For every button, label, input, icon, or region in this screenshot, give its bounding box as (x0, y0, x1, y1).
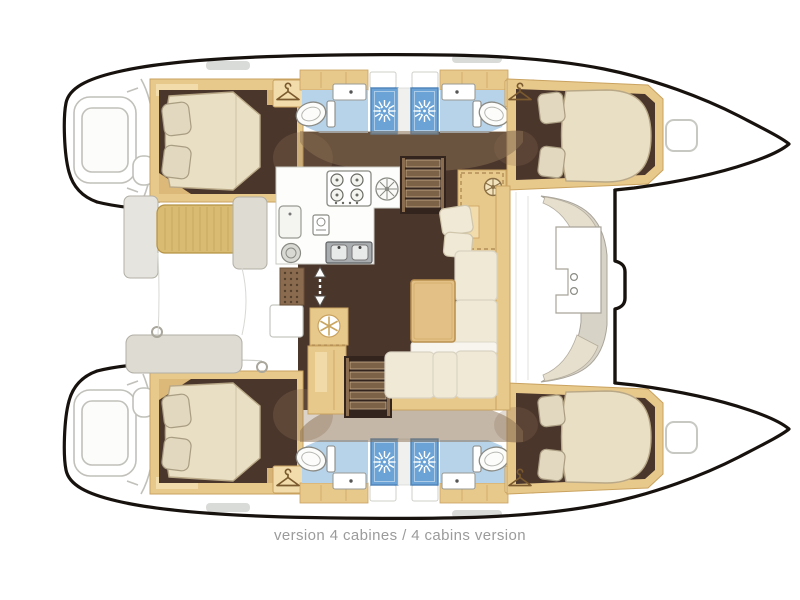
vent-fan-icon (376, 178, 398, 200)
caption: version 4 cabines / 4 cabins version (0, 527, 800, 544)
forward-cockpit (516, 189, 625, 384)
floor-plan-page: version 4 cabines / 4 cabins version (0, 0, 800, 600)
entry-mat (280, 268, 304, 305)
aft-bench-khaki (157, 205, 241, 253)
forward-seat-panel (556, 227, 601, 313)
galley-basin (279, 206, 301, 238)
round-burner (282, 244, 301, 263)
stove-icon (327, 171, 371, 206)
double-sink-icon (326, 242, 372, 263)
fridge-freezer (310, 308, 348, 345)
cockpit-locker (270, 305, 303, 337)
dinette-table (411, 280, 455, 342)
oven-icon (313, 215, 329, 235)
stairs-port (400, 156, 446, 214)
bridgedeck-outline (615, 189, 625, 384)
aft-bench-gray (126, 335, 242, 373)
catamaran-floor-plan (0, 0, 800, 600)
salon-side-wall (496, 186, 510, 410)
